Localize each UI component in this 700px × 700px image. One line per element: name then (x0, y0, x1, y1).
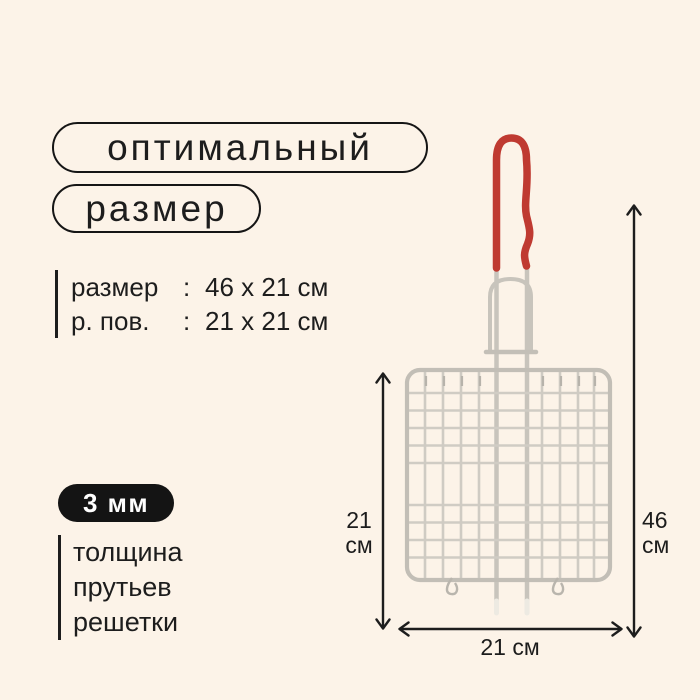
right-dimension-arrow (628, 206, 641, 637)
thickness-badge: 3 мм (58, 484, 174, 522)
grill-handle-fork (497, 264, 528, 612)
spec-size-separator: : (183, 270, 205, 304)
spec-surface-separator: : (183, 304, 205, 338)
grill-grate-frame (407, 370, 610, 580)
spec-size-value: 46 x 21 см (205, 270, 328, 304)
spec-surface-value: 21 x 21 см (205, 304, 328, 338)
grill-prong-tips (497, 601, 528, 613)
dimension-left-unit: см (336, 533, 382, 558)
dimension-label-right: 46 см (642, 508, 688, 558)
dimension-label-bottom: 21 см (455, 635, 565, 660)
left-dimension-arrow (377, 374, 390, 629)
dimension-right-value: 46 (642, 508, 688, 533)
spec-row-surface: р. пов. : 21 x 21 см (71, 304, 328, 338)
thickness-caption: толщина прутьев решетки (58, 535, 182, 640)
dimension-left-value: 21 (336, 508, 382, 533)
spec-size-label: размер (71, 270, 183, 304)
thickness-caption-line-3: решетки (73, 605, 182, 640)
title-pill-size: размер (52, 184, 261, 233)
grill-grate-vertical-wires (425, 372, 594, 578)
grill-illustration (330, 120, 690, 680)
thickness-caption-line-2: прутьев (73, 570, 182, 605)
dimension-right-unit: см (642, 533, 688, 558)
title-pill-size-label: размер (85, 188, 227, 230)
size-specs: размер : 46 x 21 см р. пов. : 21 x 21 см (55, 270, 328, 338)
spec-row-size: размер : 46 x 21 см (71, 270, 328, 304)
thickness-caption-line-1: толщина (73, 535, 182, 570)
grill-grate-hook-stubs (426, 376, 595, 386)
spec-surface-label: р. пов. (71, 304, 183, 338)
grill-red-handle (497, 138, 530, 268)
dimension-label-left: 21 см (336, 508, 382, 558)
product-infographic: оптимальный размер размер : 46 x 21 см р… (0, 0, 700, 700)
